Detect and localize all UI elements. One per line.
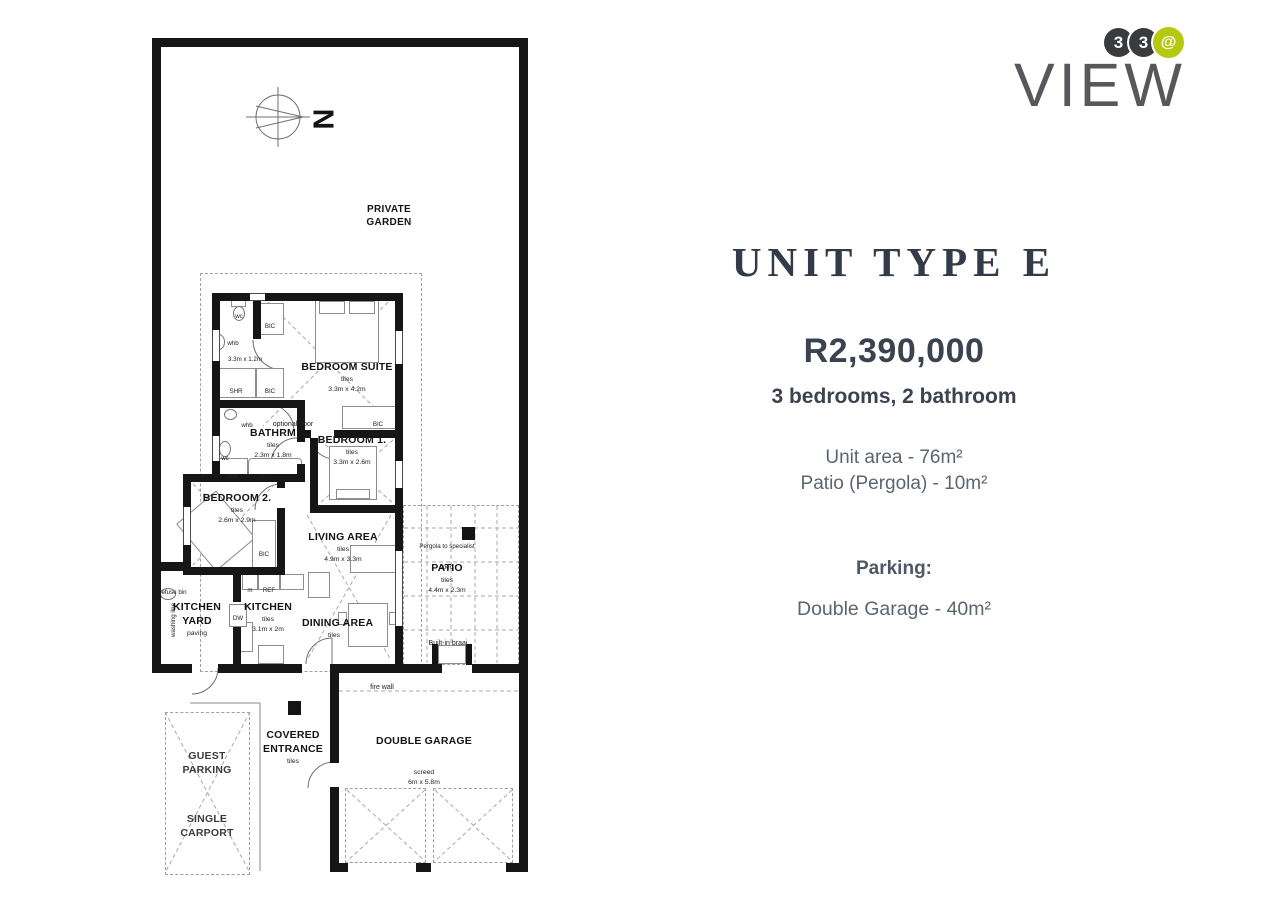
wall bbox=[472, 664, 528, 673]
bedroom2-label: BEDROOM 2. tiles 2.6m x 2.9m bbox=[200, 492, 274, 526]
brand-name: VIEW bbox=[1002, 50, 1198, 120]
kitchen-micro-label: m bbox=[243, 577, 257, 598]
wall bbox=[152, 38, 528, 47]
wall bbox=[183, 474, 305, 482]
ensuite-wc-label: wc bbox=[231, 303, 247, 324]
bathroom-shr-label: SHR bbox=[220, 464, 244, 485]
ensuite-bic-label: BIC bbox=[258, 378, 282, 399]
guest-parking-label: GUEST PARKING bbox=[167, 750, 247, 778]
pillow bbox=[336, 489, 370, 499]
window bbox=[250, 293, 265, 301]
window bbox=[395, 331, 403, 364]
wall bbox=[519, 38, 528, 872]
compass-north-label: N bbox=[303, 109, 341, 130]
tv-unit bbox=[308, 572, 330, 598]
window bbox=[212, 330, 220, 361]
pillow bbox=[349, 301, 375, 314]
wall bbox=[212, 293, 403, 301]
wall bbox=[152, 562, 183, 571]
wall bbox=[330, 787, 339, 863]
wall bbox=[330, 664, 442, 673]
wall bbox=[218, 664, 302, 673]
detail-panel: UNIT TYPE E R2,390,000 3 bedrooms, 2 bat… bbox=[703, 238, 1085, 621]
covered-entrance-label: COVERED ENTRANCE tiles bbox=[252, 729, 334, 767]
unit-title: UNIT TYPE E bbox=[703, 238, 1085, 286]
pillow bbox=[319, 301, 345, 314]
wall bbox=[152, 38, 161, 672]
single-carport-label: SINGLE CARPORT bbox=[162, 813, 252, 841]
wall bbox=[310, 505, 403, 513]
kitchen-ref-label: REF bbox=[259, 577, 279, 598]
bathroom-wc-label: wc bbox=[217, 445, 233, 466]
wall bbox=[506, 863, 528, 872]
parking-label: Parking: bbox=[703, 558, 1085, 580]
wall bbox=[277, 508, 285, 575]
floor-plan: N PRIVATE GARDEN wc BIC whb 3.3m x 1.2m … bbox=[0, 0, 700, 904]
bedroom1-label: BEDROOM 1. tiles 3.3m x 2.6m bbox=[317, 434, 387, 468]
garage-finish-label: screed 6m x 5.8m bbox=[389, 768, 459, 788]
fire-wall-label: fire wall bbox=[360, 674, 404, 695]
bedroom1-bic-label: BIC bbox=[364, 411, 392, 432]
entrance-column bbox=[288, 701, 301, 715]
ensuite-bic-top-label: BIC bbox=[258, 313, 282, 334]
bedroom-suite-label: BEDROOM SUITE tiles 3.3m x 4.2m bbox=[297, 361, 397, 395]
braai-label: Built-in braai bbox=[416, 630, 480, 651]
wall bbox=[152, 664, 192, 673]
kitchen-yard-label: KITCHEN YARD paving bbox=[166, 601, 228, 639]
sliding-door bbox=[395, 551, 403, 626]
bedroom2-bic-label: BIC bbox=[254, 541, 274, 562]
private-garden-label: PRIVATE GARDEN bbox=[352, 203, 426, 229]
wall bbox=[416, 863, 431, 872]
wall bbox=[330, 863, 348, 872]
unit-area: Unit area - 76m² bbox=[703, 445, 1085, 471]
bathroom-label: BATHRM tiles 2.3m x 1.8m bbox=[240, 427, 306, 461]
patio-area: Patio (Pergola) - 10m² bbox=[703, 471, 1085, 497]
dining-area-label: DINING AREA tiles bbox=[302, 617, 366, 641]
unit-price: R2,390,000 bbox=[703, 332, 1085, 371]
bathroom-bath-label: B bbox=[256, 464, 270, 485]
ensuite-dim-label: 3.3m x 1.2m bbox=[220, 346, 270, 367]
wall bbox=[233, 575, 241, 602]
window bbox=[183, 507, 191, 545]
double-garage-label: DOUBLE GARAGE bbox=[372, 735, 476, 749]
wall bbox=[183, 567, 285, 575]
stove bbox=[258, 645, 284, 664]
window bbox=[395, 461, 403, 488]
ensuite-shr-label: SHR bbox=[224, 378, 248, 399]
counter bbox=[280, 574, 304, 590]
living-area-label: LIVING AREA tiles 4.9m x 3.3m bbox=[308, 531, 378, 565]
parking-value: Double Garage - 40m² bbox=[703, 598, 1085, 621]
wall bbox=[277, 482, 285, 488]
wall bbox=[212, 400, 305, 408]
kitchen-label: KITCHEN tiles 3.1m x 2m bbox=[240, 601, 296, 635]
unit-config: 3 bedrooms, 2 bathroom bbox=[703, 385, 1085, 409]
brand-badge-at: @ bbox=[1153, 27, 1184, 58]
wall bbox=[297, 464, 305, 482]
patio-label: PATIO tiles 4.4m x 2.3m bbox=[412, 562, 482, 596]
